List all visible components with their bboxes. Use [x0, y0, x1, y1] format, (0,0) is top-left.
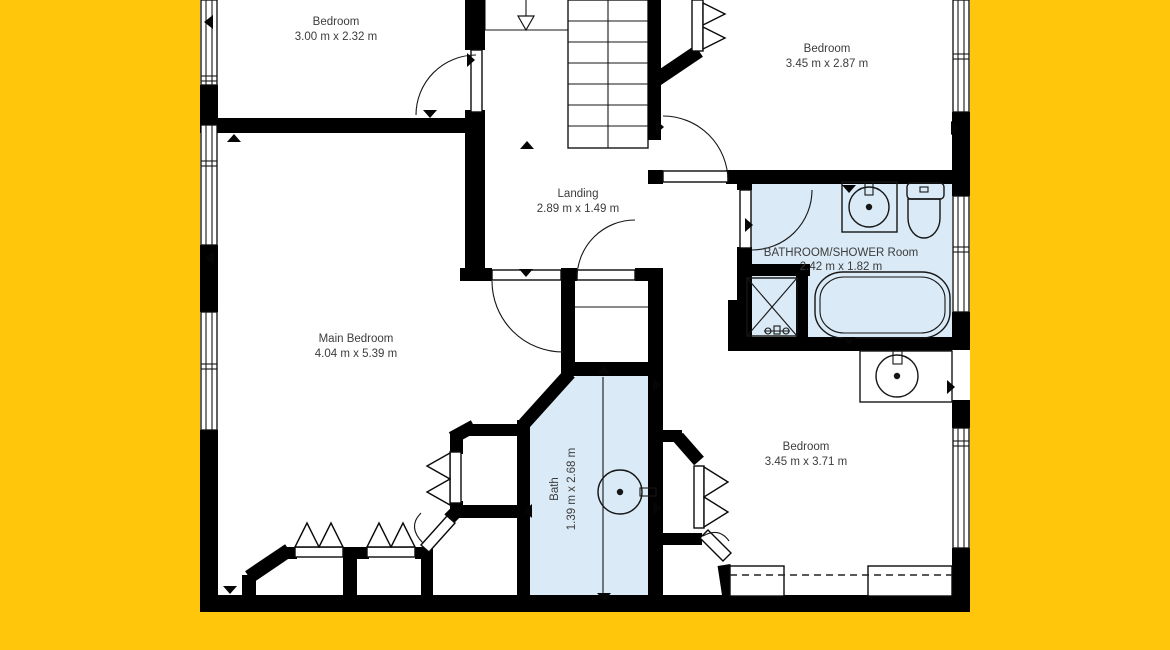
- svg-text:2.42 m x 1.82 m: 2.42 m x 1.82 m: [800, 261, 882, 273]
- svg-text:1.39 m x 2.68 m: 1.39 m x 2.68 m: [566, 448, 578, 530]
- window: [201, 312, 217, 430]
- window: [953, 428, 969, 548]
- svg-text:Main Bedroom: Main Bedroom: [319, 333, 394, 345]
- svg-text:Bedroom: Bedroom: [783, 441, 830, 453]
- floor-plan: Bedroom 3.00 m x 2.32 m Bedroom 3.45 m x…: [0, 0, 1170, 650]
- window: [953, 0, 969, 112]
- window: [201, 125, 217, 245]
- svg-text:3.45 m x 2.87 m: 3.45 m x 2.87 m: [786, 58, 868, 70]
- svg-text:4.04 m x 5.39 m: 4.04 m x 5.39 m: [315, 348, 397, 360]
- svg-text:2.89 m x 1.49 m: 2.89 m x 1.49 m: [537, 203, 619, 215]
- svg-text:Bedroom: Bedroom: [313, 16, 360, 28]
- svg-text:3.45 m x 3.71 m: 3.45 m x 3.71 m: [765, 456, 847, 468]
- bath-floor: [530, 376, 648, 598]
- window: [201, 0, 217, 85]
- floor-plan-page: Bedroom 3.00 m x 2.32 m Bedroom 3.45 m x…: [0, 0, 1170, 650]
- svg-text:3.00 m x 2.32 m: 3.00 m x 2.32 m: [295, 31, 377, 43]
- window: [953, 196, 969, 312]
- svg-text:Bath: Bath: [549, 477, 561, 501]
- svg-text:Bedroom: Bedroom: [804, 43, 851, 55]
- svg-text:Landing: Landing: [558, 188, 599, 200]
- svg-text:BATHROOM/SHOWER Room: BATHROOM/SHOWER Room: [764, 247, 918, 259]
